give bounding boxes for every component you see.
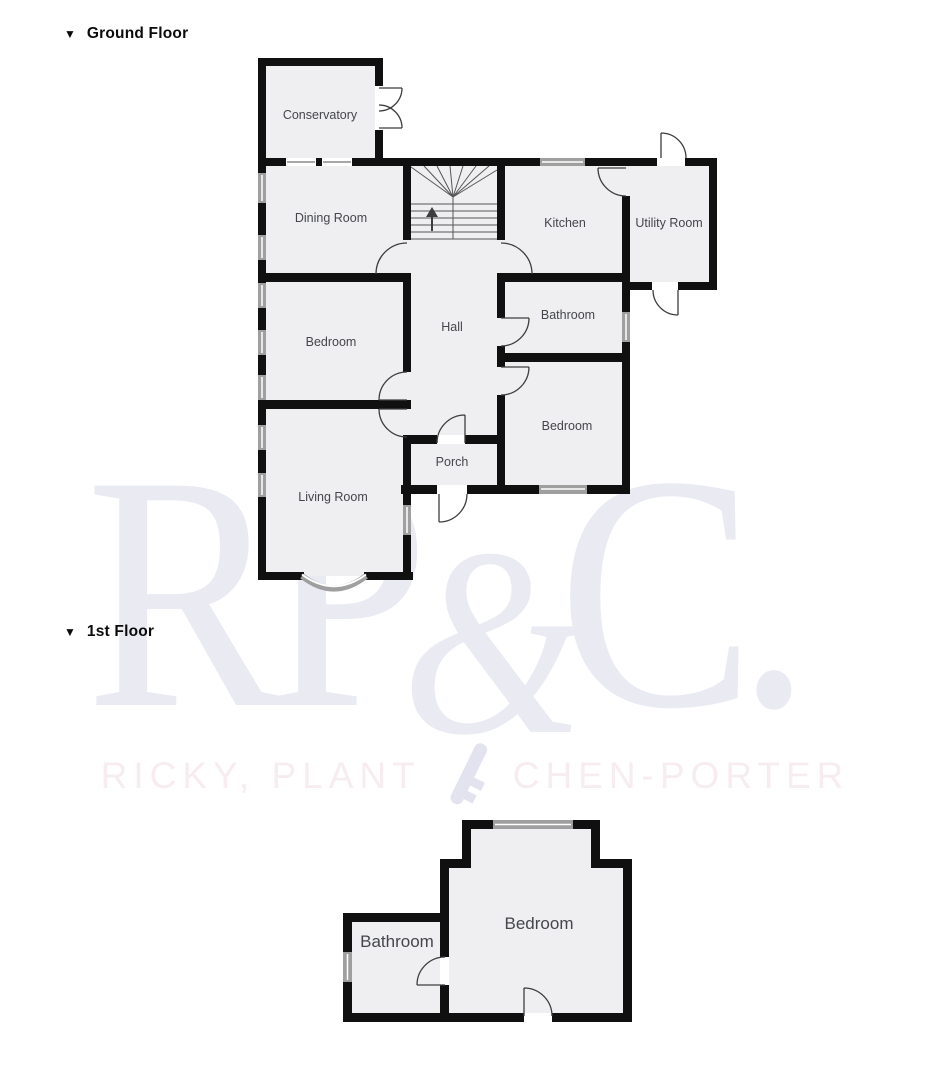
room-label-conservatory: Conservatory	[283, 108, 358, 122]
room-label-living-room: Living Room	[298, 490, 367, 504]
section-title-first-floor: 1st Floor	[87, 623, 154, 641]
room-label-dining-room: Dining Room	[295, 211, 367, 225]
first-floor-plan: Bathroom Bedroom	[343, 820, 632, 1022]
room-label-kitchen: Kitchen	[544, 216, 586, 230]
room-label-hall: Hall	[441, 320, 463, 334]
section-header-ground-floor[interactable]: ▼ Ground Floor	[64, 25, 188, 43]
room-label-bedroom-left: Bedroom	[306, 335, 357, 349]
ground-floor-plan: Conservatory Dining Room Kitchen Utility…	[258, 58, 717, 589]
bay-window	[302, 575, 366, 589]
room-label-utility-room: Utility Room	[635, 216, 702, 230]
room-label-porch: Porch	[436, 455, 469, 469]
floorplan-canvas: Conservatory Dining Room Kitchen Utility…	[0, 0, 951, 1080]
collapse-triangle-icon: ▼	[64, 626, 76, 638]
room-label-bedroom-right: Bedroom	[542, 419, 593, 433]
section-title-ground-floor: Ground Floor	[87, 25, 188, 43]
room-label-first-bedroom: Bedroom	[505, 914, 574, 933]
room-label-first-bathroom: Bathroom	[360, 932, 434, 951]
floorplan-page: RP&C. RICKY, PLANT CHEN-PORTER ▼ Ground …	[0, 0, 951, 1080]
section-header-first-floor[interactable]: ▼ 1st Floor	[64, 623, 154, 641]
collapse-triangle-icon: ▼	[64, 28, 76, 40]
room-label-bathroom: Bathroom	[541, 308, 595, 322]
